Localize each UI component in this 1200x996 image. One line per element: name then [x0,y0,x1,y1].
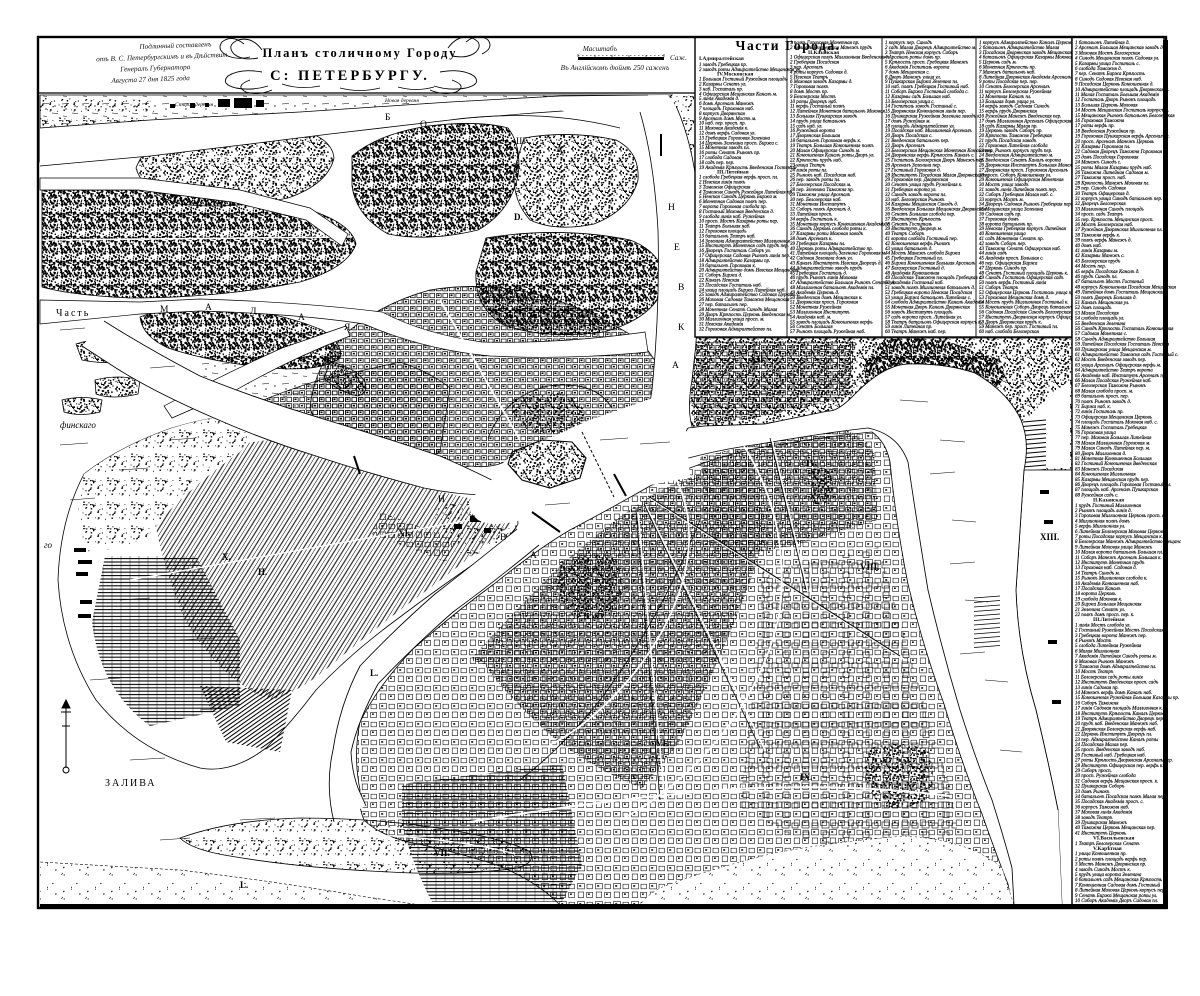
svg-text:26 Гостиный наб. Гребецкая наб: 26 Гостиный наб. Гребецкая наб. [1075,752,1146,758]
svg-text:X.: X. [222,552,231,562]
svg-text:А: А [205,303,212,313]
svg-text:D.: D. [514,212,523,222]
svg-text:19 Театръ Адмиралтейство Дворе: 19 Театръ Адмиралтейство Дворецъ пер. [1075,716,1164,722]
svg-text:Саж.: Саж. [670,54,687,62]
svg-text:8 Литейная Моховая Церковь кор: 8 Литейная Моховая Церковь корпусъ пер. [1075,888,1166,894]
svg-text:Н: Н [668,203,675,213]
svg-text:L.: L. [370,668,378,678]
svg-text:77 пер. Моховая Большая Литейн: 77 пер. Моховая Большая Литейная [1075,435,1152,441]
svg-text:18 Введенская Ружейная пр.: 18 Введенская Ружейная пр. [1075,128,1136,134]
svg-text:V.Карѣтная: V.Карѣтная [1093,845,1122,852]
svg-text:60 наб. слобода Белозерская: 60 наб. слобода Белозерская [979,330,1040,335]
svg-text:XI.: XI. [398,528,410,538]
svg-text:финскаго: финскаго [60,420,96,430]
svg-text:66 Малая Посадская Ружейная на: 66 Малая Посадская Ружейная наб. [1075,378,1152,384]
svg-text:32 Гороховая Адмиралтейство пл: 32 Гороховая Адмиралтейство пл. [699,327,772,333]
svg-text:9 Таможня домъ Адмиралтейство: 9 Таможня домъ Адмиралтейство пл. [1075,664,1156,670]
svg-text:58 Синодъ Адмиралтейство Больш: 58 Синодъ Адмиралтейство Большая [1075,336,1156,342]
svg-text:Масштабъ: Масштабъ [582,45,617,53]
svg-text:7 Академія Литейная Синодъ рот: 7 Академія Литейная Синодъ роты м. [1075,654,1157,660]
svg-text:Часть: Часть [56,308,90,319]
svg-text:82 Гостиный Конюшенная Введенс: 82 Гостиный Конюшенная Введенская [1075,461,1157,467]
svg-text:XIII.: XIII. [1040,532,1059,542]
svg-text:Ь: Ь [487,131,493,141]
svg-text:К: К [678,323,685,333]
svg-text:Н: Н [438,495,445,505]
svg-text:XII.: XII. [750,354,766,364]
svg-text:А: А [298,313,305,323]
svg-text:1 прудъ Гостиный Миллионная: 1 прудъ Гостиный Миллионная [1075,503,1142,509]
svg-text:А: А [530,551,537,561]
svg-text:VII.: VII. [434,848,450,858]
svg-text:37 Ружейная Дворянская Миллион: 37 Ружейная Дворянская Миллионная пл. [1075,227,1163,233]
svg-text:Я: Я [344,323,351,333]
svg-text:VI.: VI. [656,738,668,748]
svg-text:7 Конюшенная Садовая домъ Гост: 7 Конюшенная Садовая домъ Гостиный [1075,882,1161,888]
svg-text:60 Театръ Манежъ наб. пер.: 60 Театръ Манежъ наб. пер. [885,330,947,335]
svg-text:Е: Е [470,515,476,525]
svg-text:О: О [420,120,427,130]
svg-text:6 Литейная Белозерская Моховая: 6 Литейная Белозерская Моховая Церковь [1075,529,1166,535]
svg-text:В: В [500,533,506,543]
svg-text:II.Казанская: II.Казанская [1093,498,1124,504]
svg-text:го: го [44,540,53,550]
svg-text:86 Дворецъ площадь Гороховая Г: 86 Дворецъ площадь Гороховая Гостиный пл… [1075,482,1172,488]
svg-text:В: В [678,283,684,293]
svg-text:10 Адмиралтейство площадь Двор: 10 Адмиралтейство площадь Дворянская м. [1075,87,1169,93]
svg-text:М: М [160,305,169,315]
svg-text:23 пер. Адмиралтейство Каналъ: 23 пер. Адмиралтейство Каналъ роты [1075,737,1159,743]
svg-text:IV.: IV. [806,458,817,468]
svg-text:VI.Васильевская: VI.Васильевская [1093,836,1134,842]
svg-text:61 Адмиралтейство Таможня садъ: 61 Адмиралтейство Таможня садъ Гостиный … [1075,352,1179,358]
svg-text:Л: Л [250,307,257,317]
svg-text:III.Литейная: III.Литейная [1093,616,1125,623]
svg-text:5 слобода Литейная Ружейная: 5 слобода Литейная Ружейная [1075,643,1142,649]
svg-text:VIII.: VIII. [860,562,879,572]
svg-text:1 батальонъ Литейная д.: 1 батальонъ Литейная д. [1075,40,1130,46]
svg-text:Е: Е [674,243,680,253]
svg-text:Новая деревня: Новая деревня [384,97,419,104]
svg-text:2 Гостиный Ружейная Мостъ Поса: 2 Гостиный Ружейная Мостъ Посадская к. [1075,628,1168,634]
svg-text:64 Адмиралтейство Театръ ворот: 64 Адмиралтейство Театръ ворота [1075,368,1153,374]
svg-text:А: А [556,145,563,155]
svg-text:79 Малая Синодъ Литейная пер.: 79 Малая Синодъ Литейная пер. м. [1075,446,1150,452]
svg-text:Л: Л [455,126,462,136]
svg-text:26 Таможня Литейная Садовая м.: 26 Таможня Литейная Садовая м. [1075,170,1149,176]
svg-text:49 Литейная домъ Госпиталь Мещ: 49 Литейная домъ Госпиталь Мещанская [1075,290,1165,296]
svg-text:ЗАЛИВА: ЗАЛИВА [105,778,157,789]
svg-text:Я: Я [590,153,597,163]
svg-text:Б: Б [385,113,390,123]
svg-text:30 просп. Ружейная слобода: 30 просп. Ружейная слобода [1075,773,1136,779]
svg-text:А: А [672,361,679,371]
svg-text:Планъ столичному Городу: Планъ столичному Городу [262,46,457,60]
svg-text:Н.: Н. [258,567,267,577]
svg-text:С: ПЕТЕРБУРГУ.: С: ПЕТЕРБУРГУ. [270,68,430,84]
svg-text:57 Рынокъ площадь Ружейная наб: 57 Рынокъ площадь Ружейная наб. [790,329,865,335]
svg-text:10 Соборъ Академія Дворъ Садов: 10 Соборъ Академія Дворъ Садовая пл. [1075,899,1158,904]
svg-text:47 батальонъ Мостъ Гостиный: 47 батальонъ Мостъ Гостиный [1075,279,1144,285]
svg-text:IX.: IX. [800,772,812,782]
svg-text:Старая деревня: Старая деревня [175,101,214,108]
svg-text:Въ Англійскомъ дюймѣ 250 сажен: Въ Англійскомъ дюймѣ 250 саженъ [561,64,670,72]
svg-text:Ш: Ш [516,137,526,147]
svg-text:I.Адмиралтейская: I.Адмиралтейская [699,55,744,62]
svg-text:59 Литейная Посадская Госпитал: 59 Литейная Посадская Госпиталь Невская [1075,342,1170,348]
svg-text:9 Литейная Моховая улица Манеж: 9 Литейная Моховая улица Манежъ [1075,544,1153,550]
